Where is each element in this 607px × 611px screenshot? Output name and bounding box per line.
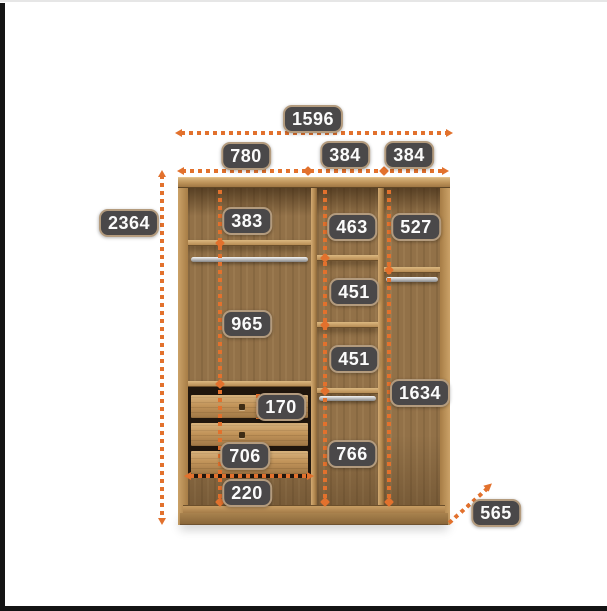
wardrobe-top-panel bbox=[178, 177, 450, 188]
arrowhead-icon bbox=[307, 472, 314, 480]
partition-left-middle bbox=[311, 188, 317, 505]
top-border-line bbox=[0, 0, 607, 2]
drawer-1-knob bbox=[239, 404, 245, 410]
badge-middle-compartment-2: 451 bbox=[329, 345, 379, 373]
arrowhead-icon bbox=[158, 518, 166, 525]
wardrobe-dimension-diagram: 1596 780 384 384 2364 383 463 527 965 45… bbox=[0, 0, 607, 611]
bottom-frame-bar bbox=[0, 606, 607, 611]
badge-middle-section-width: 384 bbox=[320, 141, 370, 169]
dim-line-drawer-width bbox=[190, 474, 308, 478]
badge-overall-height: 2364 bbox=[99, 209, 159, 237]
badge-middle-top-compartment: 463 bbox=[327, 213, 377, 241]
arrowhead-icon bbox=[446, 129, 453, 137]
wardrobe-bottom-panel bbox=[183, 505, 445, 513]
badge-drawer-height: 170 bbox=[256, 393, 306, 421]
badge-left-bottom-space: 220 bbox=[222, 479, 272, 507]
arrowhead-icon bbox=[177, 167, 184, 175]
dim-line-overall-height bbox=[160, 175, 164, 520]
badge-right-hanging-height: 1634 bbox=[390, 379, 450, 407]
drawer-2-knob bbox=[239, 432, 245, 438]
arrowhead-icon bbox=[442, 167, 449, 175]
arrowhead-icon bbox=[175, 129, 182, 137]
badge-middle-bottom-height: 766 bbox=[327, 440, 377, 468]
badge-left-section-width: 780 bbox=[221, 142, 271, 170]
wardrobe-base bbox=[180, 513, 448, 525]
arrowhead-icon bbox=[184, 472, 191, 480]
badge-left-top-compartment: 383 bbox=[222, 207, 272, 235]
arrowhead-icon bbox=[158, 170, 166, 177]
right-hanging-rod bbox=[386, 277, 438, 282]
left-top-shelf bbox=[188, 240, 311, 246]
badge-left-hanging-height: 965 bbox=[222, 310, 272, 338]
badge-total-width: 1596 bbox=[283, 105, 343, 133]
left-frame-bar bbox=[0, 3, 5, 611]
dim-line-right-column bbox=[387, 190, 391, 505]
middle-hanging-rod bbox=[319, 396, 376, 401]
badge-depth: 565 bbox=[471, 499, 521, 527]
dim-boundary-mark bbox=[303, 166, 313, 176]
partition-middle-right bbox=[378, 188, 384, 505]
badge-right-section-width: 384 bbox=[384, 141, 434, 169]
badge-right-top-compartment: 527 bbox=[391, 213, 441, 241]
wardrobe-right-wall bbox=[440, 188, 450, 525]
badge-drawer-unit-width: 706 bbox=[220, 442, 270, 470]
badge-middle-compartment-1: 451 bbox=[329, 278, 379, 306]
left-hanging-rod bbox=[191, 257, 308, 262]
